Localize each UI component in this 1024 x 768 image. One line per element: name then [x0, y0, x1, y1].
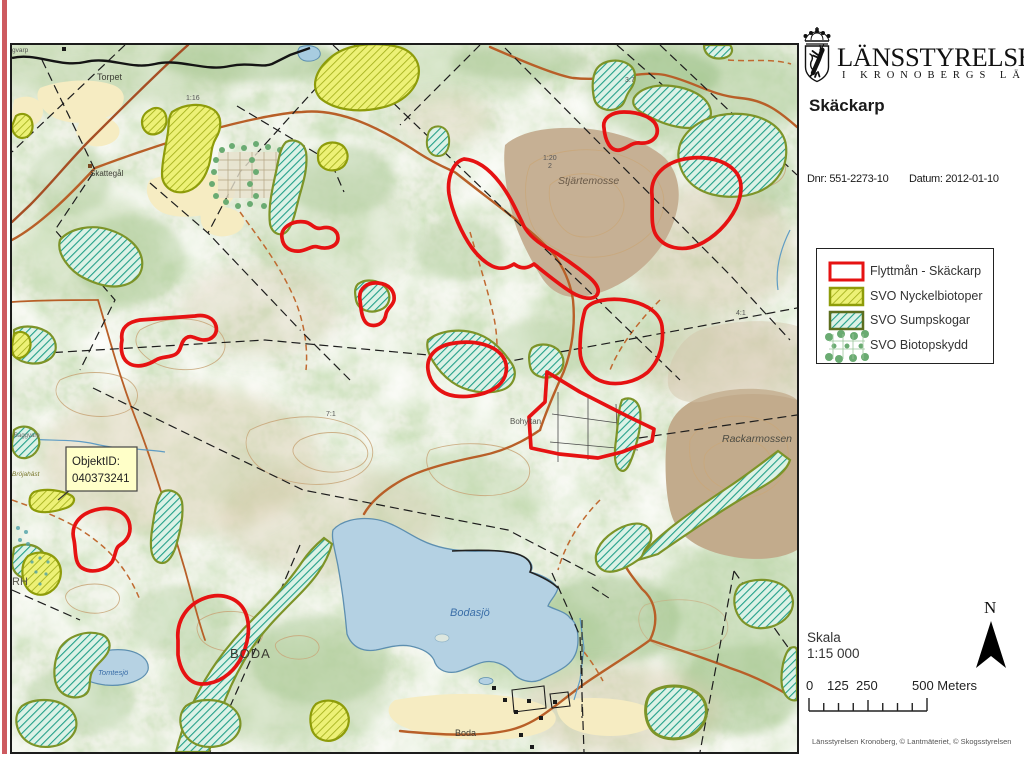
svg-text:Tomtesjö: Tomtesjö	[98, 668, 128, 677]
svg-text:7:1: 7:1	[326, 411, 336, 418]
svg-text:4:1: 4:1	[736, 310, 746, 317]
svg-text:1:16: 1:16	[186, 95, 200, 102]
svg-text:Rackarmossen: Rackarmossen	[722, 433, 792, 445]
svg-text:Bohyltan: Bohyltan	[510, 417, 541, 426]
svg-text:Bodasjö: Bodasjö	[450, 607, 490, 619]
svg-text:RH: RH	[12, 576, 28, 588]
svg-text:Torpet: Torpet	[97, 72, 123, 82]
svg-text:Baggvarp: Baggvarp	[14, 433, 40, 439]
svg-text:BODA: BODA	[230, 646, 271, 661]
svg-text:040373241: 040373241	[72, 473, 130, 485]
svg-text:Bröjahäst: Bröjahäst	[12, 471, 41, 478]
svg-text:gvarp: gvarp	[12, 47, 29, 54]
svg-text:ObjektID:: ObjektID:	[72, 456, 120, 468]
svg-text:Boda: Boda	[455, 728, 476, 738]
svg-text:3:7: 3:7	[625, 77, 635, 84]
svg-text:Stjärtemosse: Stjärtemosse	[558, 175, 619, 187]
svg-text:2: 2	[548, 163, 552, 170]
svg-text:Skattegål: Skattegål	[90, 169, 124, 178]
svg-text:1:20: 1:20	[543, 155, 557, 162]
